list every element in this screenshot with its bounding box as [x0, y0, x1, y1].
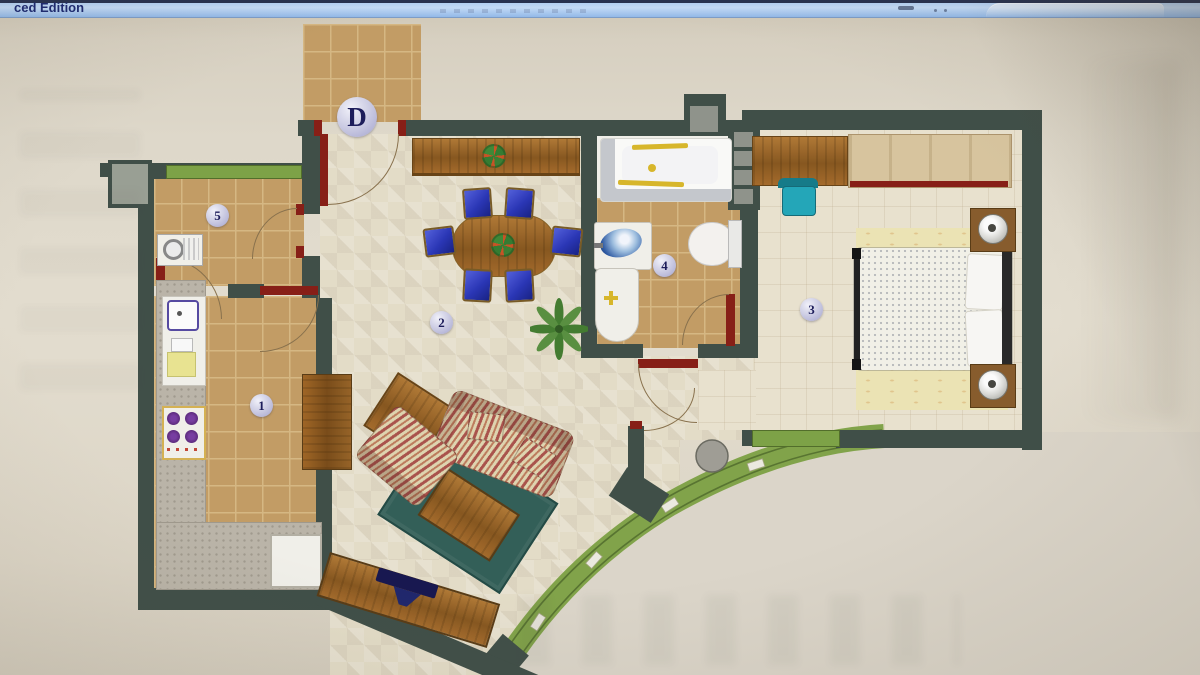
sofa-pillow — [467, 411, 506, 443]
pillow — [965, 253, 1006, 311]
dish-rack — [167, 352, 196, 377]
kitchen-tall-cabinet — [302, 374, 352, 470]
shaft-cell — [734, 132, 753, 147]
shaft-cell — [734, 170, 753, 185]
plant-wreath — [482, 144, 506, 168]
desk-chair — [782, 186, 816, 216]
washing-machine-door — [163, 239, 184, 260]
lamp-finial — [988, 224, 996, 232]
bidet-tap — [609, 291, 613, 305]
dining-chair — [504, 187, 535, 220]
dining-chair — [422, 225, 456, 258]
cooktop-burner — [185, 412, 198, 425]
dining-chair — [462, 187, 493, 220]
kitchen-sink — [167, 300, 199, 331]
cooktop-knobs — [167, 448, 199, 451]
palm-plant — [530, 298, 588, 360]
bed-frame-corner — [852, 359, 861, 370]
room-marker-living: 2 — [430, 311, 453, 334]
washbasin-tap — [594, 243, 603, 248]
door-jamb — [398, 120, 406, 136]
cooktop-burner — [167, 412, 180, 425]
cooktop-burner — [167, 430, 180, 443]
wall-segment — [742, 110, 1042, 130]
toilet-tank — [728, 220, 742, 268]
window-strip-utility — [166, 165, 302, 179]
room-marker-bedroom: 3 — [800, 298, 823, 321]
window-control-icon[interactable] — [898, 6, 914, 10]
entrance-badge: D — [337, 97, 377, 137]
wall-segment — [581, 344, 643, 358]
drainer-ribs — [183, 238, 199, 260]
terrace-column — [696, 440, 728, 472]
wall-segment — [302, 134, 320, 214]
bathtub-drain — [648, 164, 656, 172]
room-marker-kitchen: 1 — [250, 394, 273, 417]
window-control-dot — [944, 9, 947, 12]
room-marker-bathroom: 4 — [653, 254, 676, 277]
window-titlebar[interactable]: ced Edition — [0, 0, 1200, 18]
shaft-cell — [734, 189, 753, 204]
sink-drain — [177, 311, 182, 316]
palm-leaves — [530, 298, 588, 360]
floor-plan: D 1 2 3 4 5 — [0, 0, 1200, 675]
wall-segment — [836, 430, 1042, 448]
wall-segment — [228, 284, 264, 298]
bathtub-inner — [622, 146, 718, 184]
wall-segment — [1022, 110, 1042, 450]
cooktop-burner — [185, 430, 198, 443]
door-jamb — [630, 421, 642, 429]
headboard — [1002, 246, 1012, 372]
service-shaft-top-inner — [690, 106, 718, 132]
table-centerpiece — [491, 233, 515, 257]
pillow — [965, 309, 1006, 367]
entrance-door-leaf — [320, 134, 328, 206]
fridge — [270, 534, 322, 588]
sink-accessory — [171, 338, 193, 352]
lamp-finial — [988, 380, 996, 388]
door-jamb — [296, 246, 304, 258]
door-leaf — [260, 286, 318, 295]
dining-chair — [550, 225, 584, 257]
wardrobe-front-edge — [850, 181, 1008, 187]
bidet — [595, 268, 639, 342]
utility-box — [108, 160, 152, 208]
toolbar-text-faint — [440, 9, 590, 13]
screen-photo: D 1 2 3 4 5 ced Edition — [0, 0, 1200, 675]
bed-frame-corner — [852, 248, 861, 259]
window-tab-corner — [986, 3, 1164, 18]
window-control-dot — [934, 9, 937, 12]
room-marker-utility: 5 — [206, 204, 229, 227]
window-title: ced Edition — [14, 0, 84, 16]
wardrobe — [848, 134, 1012, 188]
wall-segment — [628, 426, 644, 490]
wall-segment — [138, 588, 332, 610]
dining-chair — [462, 268, 493, 302]
shaft-cell — [734, 151, 753, 166]
door-jamb — [296, 204, 304, 215]
wall-segment — [138, 163, 154, 610]
window-strip-bedroom — [752, 430, 840, 447]
